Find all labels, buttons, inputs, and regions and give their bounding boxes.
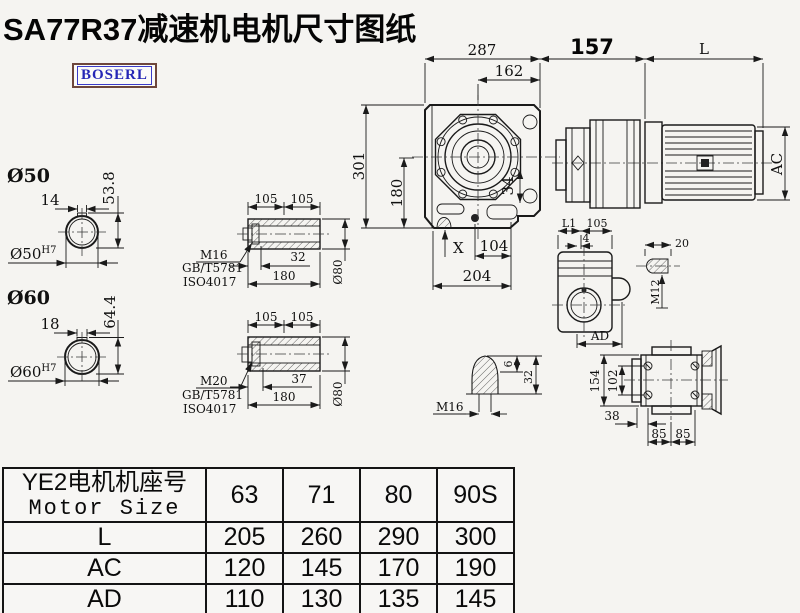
dim-38: 38 xyxy=(604,409,619,423)
row-label-L: L xyxy=(3,522,206,553)
dim-AC: AC xyxy=(768,153,786,176)
table-header-cn: YE2电机机座号 xyxy=(4,470,205,496)
dim-L: L xyxy=(699,40,709,58)
dim-AD: AD xyxy=(590,329,609,343)
dim-14: 14 xyxy=(40,191,59,209)
dim-dia80-bottom: Ø80 xyxy=(331,381,345,406)
dim-104: 104 xyxy=(480,237,509,255)
oil-plug xyxy=(437,218,451,229)
standard-gb-top: GB/T5781 xyxy=(182,261,243,275)
dim-32: 32 xyxy=(290,250,305,264)
key-detail: 20 M12 xyxy=(636,237,689,308)
thread-M16: M16 xyxy=(436,400,464,414)
row-label-AD: AD xyxy=(3,584,206,613)
row-label-AC: AC xyxy=(3,553,206,584)
shaft50-section: Ø50 14 53.8 Ø50H7 xyxy=(7,165,124,268)
flange-view: 154 102 38 85 85 xyxy=(588,340,728,446)
breather-dome xyxy=(472,356,498,394)
dim-20: 20 xyxy=(675,237,689,250)
motor-flange xyxy=(645,122,662,203)
dim-L1: L1 xyxy=(562,217,576,230)
dim-204: 204 xyxy=(463,267,492,285)
cell-AD-80: 135 xyxy=(360,584,437,613)
table-header-en: Motor Size xyxy=(4,496,205,521)
hollow-shaft-top: 105 105 32 180 Ø80 M16 GB/T5781 ISO4017 xyxy=(182,192,350,289)
dim-4: 4 xyxy=(583,232,590,245)
cell-L-90S: 300 xyxy=(437,522,514,553)
dim-180: 180 xyxy=(388,179,406,208)
shaft50-label: Ø50 xyxy=(7,165,50,187)
input-housing xyxy=(590,120,640,208)
dim-157: 157 xyxy=(570,35,614,59)
table-row-AD: AD 110 130 135 145 xyxy=(3,584,514,613)
dim-18: 18 xyxy=(40,315,59,333)
cell-L-71: 260 xyxy=(283,522,360,553)
col-90S: 90S xyxy=(437,468,514,522)
dim-105-left: 105 xyxy=(255,310,278,324)
dim-287: 287 xyxy=(468,41,497,59)
dim-105-right: 105 xyxy=(291,192,314,206)
dim-105: 105 xyxy=(587,217,608,230)
housing-bolt-top xyxy=(523,115,537,129)
dim-180-top: 180 xyxy=(273,269,296,283)
bolt-head xyxy=(242,347,252,362)
dim-162: 162 xyxy=(495,62,524,80)
col-63: 63 xyxy=(206,468,283,522)
shaft60-label: Ø60 xyxy=(7,287,50,309)
cell-AC-90S: 190 xyxy=(437,553,514,584)
standard-iso-top: ISO4017 xyxy=(183,275,236,289)
dim-32: 32 xyxy=(522,370,535,384)
gearbox-end-view: L1 105 4 AD xyxy=(552,217,630,348)
shaft50-bore-label: Ø50H7 xyxy=(10,245,56,263)
cell-AC-63: 120 xyxy=(206,553,283,584)
dim-105-left: 105 xyxy=(255,192,278,206)
table-header-cell: YE2电机机座号 Motor Size xyxy=(3,468,206,522)
table-row-AC: AC 120 145 170 190 xyxy=(3,553,514,584)
bolt-spec-m16: M16 xyxy=(200,248,228,262)
standard-gb-bottom: GB/T5781 xyxy=(182,388,243,402)
dim-85-left: 85 xyxy=(651,427,666,441)
dim-105-right: 105 xyxy=(291,310,314,324)
cell-AD-90S: 145 xyxy=(437,584,514,613)
dim-102: 102 xyxy=(606,370,620,393)
cell-AC-71: 145 xyxy=(283,553,360,584)
dim-37: 37 xyxy=(291,372,306,386)
cell-AD-71: 130 xyxy=(283,584,360,613)
dim-180-bottom: 180 xyxy=(273,390,296,404)
standard-iso-bottom: ISO4017 xyxy=(183,402,236,416)
dim-301: 301 xyxy=(350,152,368,181)
dim-34: 34 xyxy=(499,176,517,195)
drawing-sheet: SA77R37减速机电机尺寸图纸 BOSERL xyxy=(0,0,800,613)
label-X: X xyxy=(453,239,464,257)
mounting-bolts xyxy=(644,362,699,399)
dim-53.8: 53.8 xyxy=(100,171,118,204)
dim-85-right: 85 xyxy=(675,427,690,441)
shaft60-section: Ø60 18 64.4 Ø60H7 xyxy=(7,287,124,386)
cell-AC-80: 170 xyxy=(360,553,437,584)
cell-L-63: 205 xyxy=(206,522,283,553)
dim-64.4: 64.4 xyxy=(101,295,119,328)
dim-154: 154 xyxy=(588,369,602,392)
col-71: 71 xyxy=(283,468,360,522)
input-shaft-cover xyxy=(612,278,630,300)
dim-dia80-top: Ø80 xyxy=(331,259,345,284)
shaft60-bore-label: Ø60H7 xyxy=(10,363,56,381)
bolt-spec-m20: M20 xyxy=(200,374,228,388)
cell-L-80: 290 xyxy=(360,522,437,553)
motor-end-cap xyxy=(755,131,763,194)
col-80: 80 xyxy=(360,468,437,522)
cell-AD-63: 110 xyxy=(206,584,283,613)
table-row-L: L 205 260 290 300 xyxy=(3,522,514,553)
plug-detail: M16 6 32 xyxy=(433,356,542,414)
housing-bolt-bottom xyxy=(523,189,537,203)
dim-6: 6 xyxy=(502,361,515,368)
motor-size-table: YE2电机机座号 Motor Size 63 71 80 90S L 205 2… xyxy=(2,467,515,613)
hollow-shaft-bottom: 105 105 37 180 Ø80 M20 GB/T5781 ISO4017 xyxy=(182,310,350,416)
thread-M12: M12 xyxy=(649,279,662,304)
